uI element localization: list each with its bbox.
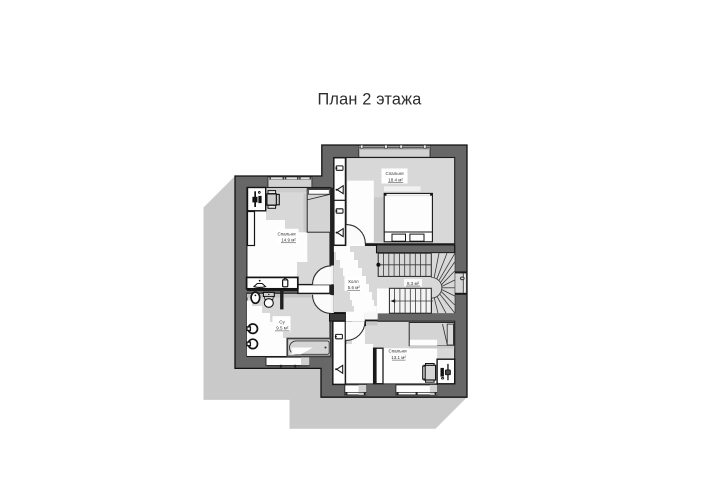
svg-text:Су: Су bbox=[279, 319, 285, 324]
svg-text:9.5 м²: 9.5 м² bbox=[276, 326, 289, 331]
svg-text:13.1 м²: 13.1 м² bbox=[391, 355, 406, 360]
svg-text:Спальня: Спальня bbox=[388, 349, 407, 354]
svg-text:План 2 этажа: План 2 этажа bbox=[318, 91, 423, 109]
svg-text:14.9 м²: 14.9 м² bbox=[281, 238, 296, 243]
svg-text:5.6 м²: 5.6 м² bbox=[348, 285, 361, 290]
svg-text:8.3 м²: 8.3 м² bbox=[407, 281, 420, 286]
svg-text:18.4 м²: 18.4 м² bbox=[388, 177, 403, 182]
svg-text:Спальня: Спальня bbox=[277, 232, 296, 237]
svg-text:Холл: Холл bbox=[348, 279, 359, 284]
svg-text:Спальня: Спальня bbox=[385, 171, 404, 176]
